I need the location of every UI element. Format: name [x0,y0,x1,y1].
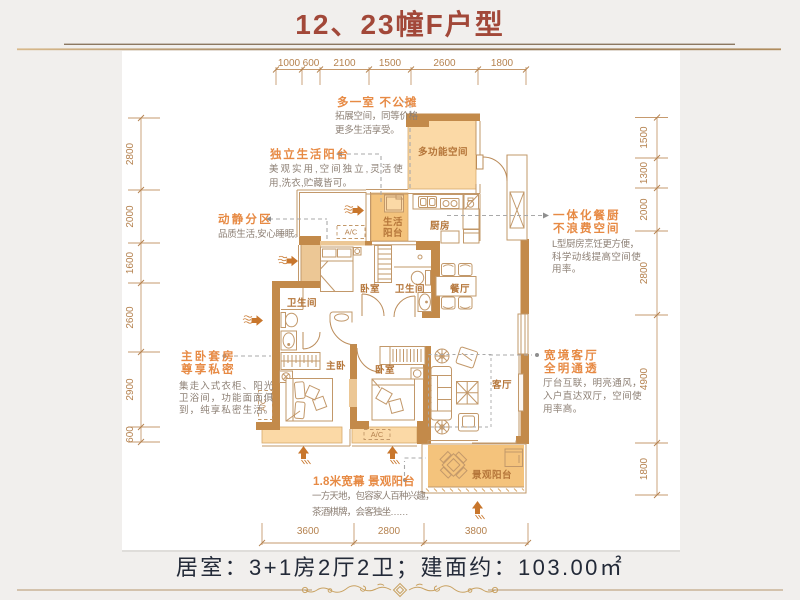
svg-text:2900: 2900 [125,378,136,401]
svg-text:集走入式衣柜、阳光: 集走入式衣柜、阳光 [179,380,274,392]
svg-text:动静分区: 动静分区 [218,212,273,226]
svg-text:1500: 1500 [379,58,402,69]
svg-text:更多生活享受。: 更多生活享受。 [335,124,399,136]
svg-text:1.8米宽幕 景观阳台: 1.8米宽幕 景观阳台 [313,474,415,488]
svg-text:卧室: 卧室 [360,283,380,295]
svg-text:尊享私密: 尊享私密 [181,362,236,376]
svg-text:茶酒棋牌，会客独坐……: 茶酒棋牌，会客独坐…… [312,506,408,518]
svg-text:厅台互联，明亮通风，: 厅台互联，明亮通风， [543,377,642,389]
svg-text:一体化餐厨: 一体化餐厨 [553,208,621,222]
svg-text:2800: 2800 [125,142,136,165]
svg-text:卫生间: 卫生间 [395,283,425,295]
svg-text:独立生活阳台: 独立生活阳台 [270,147,350,161]
svg-text:主卧套房: 主卧套房 [181,349,236,363]
svg-text:2100: 2100 [333,58,356,69]
svg-text:主卧: 主卧 [326,360,346,372]
svg-text:宽境客厅: 宽境客厅 [543,348,599,362]
svg-text:客厅: 客厅 [491,379,512,391]
svg-text:1500: 1500 [639,126,650,149]
svg-text:600: 600 [303,58,320,69]
svg-text:2800: 2800 [378,526,401,537]
svg-text:居室：3+1房2厅2卫；建面约：103.00㎡: 居室：3+1房2厅2卫；建面约：103.00㎡ [176,555,624,580]
svg-text:2000: 2000 [125,205,136,228]
svg-text:不浪费空间: 不浪费空间 [553,221,621,235]
svg-text:2000: 2000 [639,198,650,221]
svg-text:一方天地，包容家人百种兴趣，: 一方天地，包容家人百种兴趣， [312,490,434,502]
svg-text:生活: 生活 [383,216,403,228]
svg-text:3800: 3800 [465,526,488,537]
svg-text:多一室 不公摊: 多一室 不公摊 [337,95,418,109]
svg-text:卧室: 卧室 [375,364,395,376]
svg-text:美观实用,空间独立,灵活使: 美观实用,空间独立,灵活使 [269,163,405,175]
svg-text:餐厅: 餐厅 [449,283,470,295]
svg-text:入户直达双厅，空间使: 入户直达双厅，空间使 [543,390,642,402]
svg-text:全明通透: 全明通透 [543,361,599,375]
svg-text:拓展空间，同等价格: 拓展空间，同等价格 [335,110,419,122]
svg-text:A/C: A/C [345,228,358,237]
svg-text:12、23幢F户型: 12、23幢F户型 [295,8,504,40]
svg-text:景观阳台: 景观阳台 [471,469,512,481]
svg-text:卫浴间，功能面面俱: 卫浴间，功能面面俱 [179,392,274,404]
svg-text:卫生间: 卫生间 [287,297,317,309]
svg-text:A/C: A/C [371,430,384,439]
svg-text:1000: 1000 [278,58,301,69]
svg-text:L型厨房烹饪更方便，: L型厨房烹饪更方便， [552,238,639,250]
svg-text:科学动线提高空间使: 科学动线提高空间使 [552,251,641,263]
svg-text:厨房: 厨房 [430,220,450,232]
svg-text:1300: 1300 [639,161,650,184]
svg-text:3600: 3600 [297,526,320,537]
svg-text:1600: 1600 [125,251,136,274]
svg-text:1800: 1800 [491,58,514,69]
svg-text:多功能空间: 多功能空间 [418,146,468,158]
svg-text:2600: 2600 [433,58,456,69]
svg-text:到，纯享私密生活。: 到，纯享私密生活。 [179,404,274,416]
svg-text:2800: 2800 [639,261,650,284]
svg-text:2600: 2600 [125,306,136,329]
svg-text:1800: 1800 [639,457,650,480]
svg-text:用率。: 用率。 [552,263,582,275]
svg-text:品质生活,安心睡眠。: 品质生活,安心睡眠。 [218,228,303,240]
svg-text:600: 600 [125,426,136,443]
svg-text:用率高。: 用率高。 [543,403,583,415]
svg-text:用,洗衣,贮藏皆可。: 用,洗衣,贮藏皆可。 [269,177,352,189]
svg-text:阳台: 阳台 [383,227,403,239]
